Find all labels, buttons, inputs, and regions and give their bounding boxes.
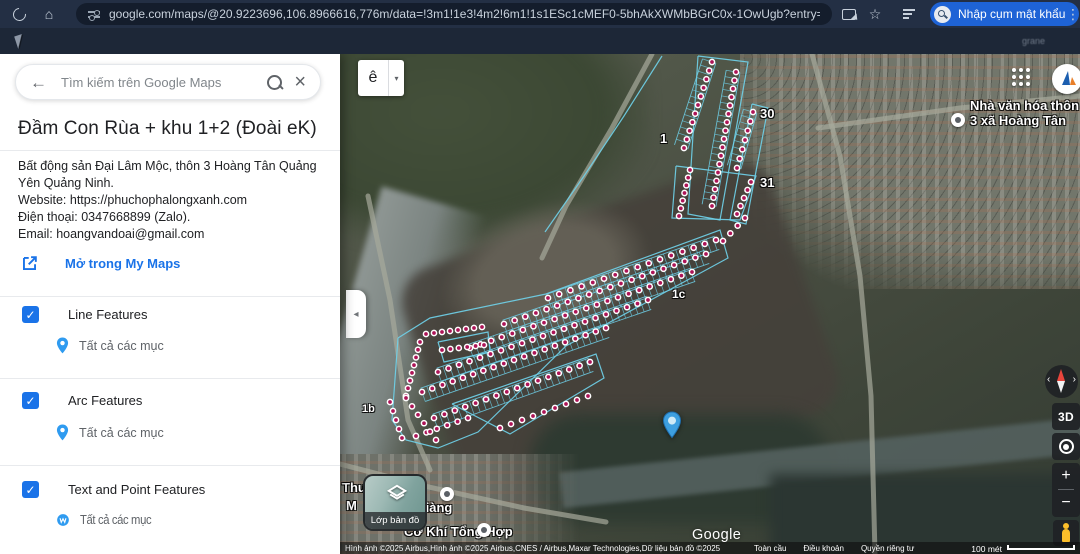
parcel-tick (537, 348, 542, 361)
lot-marker[interactable] (603, 312, 608, 317)
parcel-line (503, 250, 705, 320)
lot-marker[interactable] (447, 328, 452, 333)
search-icon[interactable] (267, 75, 282, 90)
link-privacy[interactable]: Quyền riêng tư (861, 544, 914, 553)
layer-items-text-point-features[interactable]: Tất cả các mục (56, 513, 159, 527)
lot-marker[interactable] (545, 295, 550, 300)
lot-marker[interactable] (745, 187, 750, 192)
layer-items-label: Tất cả các mục (80, 513, 151, 527)
lot-marker[interactable] (576, 296, 581, 301)
lot-marker[interactable] (489, 338, 494, 343)
lot-marker[interactable] (646, 261, 651, 266)
lot-marker[interactable] (726, 111, 731, 116)
lot-marker[interactable] (680, 249, 685, 254)
lot-marker[interactable] (737, 156, 742, 161)
lot-marker[interactable] (572, 323, 577, 328)
lot-marker[interactable] (573, 309, 578, 314)
layer-row-line-features: Line Features (22, 306, 148, 323)
lot-marker[interactable] (567, 367, 572, 372)
lot-marker[interactable] (551, 330, 556, 335)
browser-menu-button[interactable]: ⋮ (1062, 3, 1080, 25)
lot-marker[interactable] (546, 374, 551, 379)
lot-marker[interactable] (413, 355, 418, 360)
open-in-new-icon (20, 254, 39, 273)
home-button[interactable]: ⌂ (38, 3, 60, 25)
lot-marker[interactable] (465, 415, 470, 420)
lot-marker[interactable] (676, 213, 681, 218)
lot-marker[interactable] (684, 137, 689, 142)
rotate-left-icon: ‹ (1047, 374, 1050, 385)
lot-marker[interactable] (601, 276, 606, 281)
lot-marker[interactable] (448, 346, 453, 351)
lot-marker[interactable] (450, 379, 455, 384)
lot-marker[interactable] (541, 409, 546, 414)
lot-marker[interactable] (431, 330, 436, 335)
lot-marker[interactable] (603, 325, 608, 330)
lot-marker[interactable] (682, 190, 687, 195)
lot-marker[interactable] (657, 257, 662, 262)
lot-marker[interactable] (455, 327, 460, 332)
lot-marker[interactable] (390, 408, 395, 413)
lot-marker[interactable] (393, 417, 398, 422)
lot-marker[interactable] (647, 284, 652, 289)
zoom-in-button[interactable]: + (1052, 463, 1080, 489)
lot-marker[interactable] (703, 251, 708, 256)
lot-marker[interactable] (594, 302, 599, 307)
lot-marker[interactable] (637, 287, 642, 292)
lot-marker[interactable] (439, 347, 444, 352)
lot-marker[interactable] (721, 136, 726, 141)
lot-marker[interactable] (481, 342, 486, 347)
layer-items-label: Tất cả các mục (79, 426, 164, 440)
lot-marker[interactable] (532, 350, 537, 355)
lot-marker[interactable] (702, 241, 707, 246)
lot-marker[interactable] (531, 324, 536, 329)
lot-marker[interactable] (439, 329, 444, 334)
lot-marker[interactable] (727, 103, 732, 108)
lot-marker[interactable] (711, 195, 716, 200)
lot-marker[interactable] (411, 363, 416, 368)
lot-marker[interactable] (584, 306, 589, 311)
lot-marker[interactable] (687, 128, 692, 133)
lot-marker[interactable] (734, 211, 739, 216)
lot-marker[interactable] (544, 307, 549, 312)
lot-marker[interactable] (593, 315, 598, 320)
lot-marker[interactable] (409, 404, 414, 409)
lot-marker[interactable] (698, 94, 703, 99)
lot-marker[interactable] (504, 389, 509, 394)
star-icon: ☆ (869, 6, 882, 23)
lot-marker[interactable] (456, 345, 461, 350)
lot-marker[interactable] (440, 382, 445, 387)
lot-marker[interactable] (508, 421, 513, 426)
lot-marker[interactable] (590, 280, 595, 285)
map-canvas[interactable]: 130311c1bNhà văn hóa thôn 3 xã Hoàng Tân… (340, 54, 1080, 554)
lot-marker[interactable] (680, 198, 685, 203)
zoom-control: + − (1052, 463, 1080, 517)
lot-marker[interactable] (435, 369, 440, 374)
password-prompt-label: Nhập cụm mật khẩu (958, 7, 1065, 21)
lot-marker[interactable] (693, 111, 698, 116)
layer-items-line-features[interactable]: Tất cả các mục (56, 337, 164, 354)
key-icon (934, 6, 951, 23)
lot-marker[interactable] (618, 281, 623, 286)
description-line: Bất động sản Đại Lâm Mộc, thôn 3 Hoàng T… (18, 158, 318, 192)
parcel-tick (561, 368, 566, 381)
back-button[interactable]: ← (30, 74, 47, 91)
lot-marker[interactable] (483, 397, 488, 402)
lot-marker[interactable] (463, 326, 468, 331)
lot-marker[interactable] (415, 347, 420, 352)
lot-marker[interactable] (713, 237, 718, 242)
lot-marker[interactable] (465, 344, 470, 349)
lot-marker[interactable] (530, 337, 535, 342)
reload-icon (10, 5, 28, 23)
lot-marker[interactable] (511, 357, 516, 362)
lot-marker[interactable] (501, 321, 506, 326)
google-logo: Google (692, 527, 741, 543)
lot-marker[interactable] (460, 375, 465, 380)
ime-language-char: ê (358, 60, 389, 96)
lot-marker[interactable] (724, 120, 729, 125)
lot-marker[interactable] (430, 386, 435, 391)
search-input[interactable] (59, 74, 255, 91)
lot-marker[interactable] (748, 119, 753, 124)
lot-marker[interactable] (409, 370, 414, 375)
ime-indicator[interactable]: ê ▾ (358, 60, 404, 96)
lot-marker[interactable] (552, 343, 557, 348)
lot-marker[interactable] (573, 336, 578, 341)
layers-icon (386, 484, 408, 504)
divider (0, 150, 340, 151)
close-icon[interactable]: × (294, 72, 306, 92)
pegman-icon (1062, 529, 1070, 542)
lot-marker[interactable] (742, 137, 747, 142)
poi-marker[interactable] (477, 523, 491, 537)
lot-marker[interactable] (626, 291, 631, 296)
lot-marker[interactable] (557, 292, 562, 297)
lot-marker[interactable] (561, 326, 566, 331)
lot-marker[interactable] (614, 308, 619, 313)
lot-marker[interactable] (488, 351, 493, 356)
description-line: Điện thoại: 0347668899 (Zalo). (18, 209, 318, 226)
lot-marker[interactable] (686, 175, 691, 180)
map-title: Đầm Con Rùa + khu 1+2 (Đoài eK) (18, 118, 317, 140)
layer-checkbox[interactable] (22, 306, 39, 323)
dropped-pin[interactable] (662, 411, 682, 444)
lot-marker[interactable] (540, 333, 545, 338)
layer-label: Text and Point Features (68, 482, 205, 497)
lot-marker[interactable] (442, 412, 447, 417)
lot-marker[interactable] (433, 437, 438, 442)
lot-marker[interactable] (742, 215, 747, 220)
road (818, 96, 1080, 128)
lot-marker[interactable] (555, 303, 560, 308)
scale-label: 100 mét (971, 544, 1002, 554)
lot-marker[interactable] (629, 277, 634, 282)
lot-marker[interactable] (481, 368, 486, 373)
avatar-logo-icon (1054, 66, 1080, 92)
lot-marker[interactable] (541, 320, 546, 325)
send-to-device-icon (842, 9, 856, 20)
place-pin-icon (56, 424, 69, 441)
lot-marker[interactable] (640, 274, 645, 279)
lot-marker[interactable] (473, 343, 478, 348)
lot-marker[interactable] (624, 268, 629, 273)
lot-marker[interactable] (563, 313, 568, 318)
lot-marker[interactable] (522, 354, 527, 359)
my-location-button[interactable] (1052, 433, 1080, 460)
lot-marker[interactable] (729, 95, 734, 100)
lot-marker[interactable] (535, 378, 540, 383)
lot-marker[interactable] (491, 365, 496, 370)
pin-icon (662, 411, 682, 439)
kebab-menu-icon: ⋮ (1066, 6, 1080, 23)
lot-marker[interactable] (613, 272, 618, 277)
lot-marker[interactable] (658, 280, 663, 285)
lot-marker[interactable] (499, 335, 504, 340)
lot-marker[interactable] (679, 273, 684, 278)
lot-marker[interactable] (717, 162, 722, 167)
site-settings-icon[interactable] (88, 9, 100, 19)
lot-marker[interactable] (455, 419, 460, 424)
description-line: Email: hoangvandoai@gmail.com (18, 226, 318, 243)
lot-marker[interactable] (714, 178, 719, 183)
bookmarks-bar-text: grane (1022, 36, 1045, 46)
description-line: Website: https://phuchophalongxanh.com (18, 192, 318, 209)
compass-control[interactable]: ‹ › (1045, 365, 1078, 398)
lot-marker[interactable] (542, 347, 547, 352)
layer-items-arc-features[interactable]: Tất cả các mục (56, 424, 164, 441)
lot-marker[interactable] (501, 361, 506, 366)
lot-marker[interactable] (498, 348, 503, 353)
layer-checkbox[interactable] (22, 392, 39, 409)
lot-marker[interactable] (563, 401, 568, 406)
lot-marker[interactable] (512, 318, 517, 323)
lot-marker[interactable] (520, 327, 525, 332)
lot-marker[interactable] (709, 59, 714, 64)
lot-marker[interactable] (597, 288, 602, 293)
place-pin-icon (56, 337, 69, 354)
lot-marker[interactable] (734, 165, 739, 170)
url-text: google.com/maps/@20.9223696,106.8966616,… (109, 7, 820, 21)
lot-marker[interactable] (682, 259, 687, 264)
lot-marker[interactable] (661, 266, 666, 271)
lot-marker[interactable] (650, 270, 655, 275)
lot-marker[interactable] (579, 284, 584, 289)
lot-marker[interactable] (427, 429, 432, 434)
chevron-down-icon[interactable]: ▾ (389, 60, 404, 96)
compass-north-needle (1057, 369, 1065, 381)
lot-marker[interactable] (565, 299, 570, 304)
lot-marker[interactable] (669, 253, 674, 258)
link-global[interactable]: Toàn cầu (754, 544, 786, 553)
lot-marker[interactable] (387, 399, 392, 404)
lot-marker[interactable] (624, 305, 629, 310)
lot-marker[interactable] (473, 400, 478, 405)
lot-marker[interactable] (434, 426, 439, 431)
lot-marker[interactable] (608, 285, 613, 290)
lot-marker[interactable] (583, 333, 588, 338)
reload-button[interactable] (8, 3, 30, 25)
layer-label: Line Features (68, 307, 148, 322)
lot-marker[interactable] (403, 395, 408, 400)
lot-marker[interactable] (732, 78, 737, 83)
lot-marker[interactable] (635, 301, 640, 306)
lot-marker[interactable] (704, 77, 709, 82)
lot-marker[interactable] (399, 435, 404, 440)
lot-marker[interactable] (712, 187, 717, 192)
lot-marker[interactable] (672, 262, 677, 267)
lot-marker[interactable] (523, 314, 528, 319)
lot-marker[interactable] (510, 331, 515, 336)
lot-marker[interactable] (684, 183, 689, 188)
account-avatar[interactable] (1052, 64, 1080, 94)
rotate-right-icon: › (1073, 374, 1076, 385)
lot-marker[interactable] (456, 362, 461, 367)
lot-marker[interactable] (556, 371, 561, 376)
bookmark-star-button[interactable]: ☆ (864, 3, 886, 25)
lot-marker[interactable] (479, 324, 484, 329)
layer-row-text-point-features: Text and Point Features (22, 481, 205, 498)
lot-marker[interactable] (471, 372, 476, 377)
lot-marker[interactable] (681, 145, 686, 150)
lot-marker[interactable] (730, 86, 735, 91)
lot-marker[interactable] (552, 405, 557, 410)
open-in-mymaps-label: Mở trong My Maps (65, 256, 180, 271)
lot-marker[interactable] (431, 415, 436, 420)
zoom-out-button[interactable]: − (1052, 490, 1080, 516)
collections-button[interactable] (898, 3, 920, 25)
lot-marker[interactable] (515, 386, 520, 391)
mouse-cursor (14, 34, 26, 49)
lot-marker[interactable] (668, 277, 673, 282)
password-prompt-button[interactable]: Nhập cụm mật khẩu (930, 2, 1079, 26)
lot-marker[interactable] (463, 404, 468, 409)
lot-marker[interactable] (585, 393, 590, 398)
lot-marker[interactable] (720, 145, 725, 150)
lot-marker[interactable] (415, 412, 420, 417)
google-apps-button[interactable] (1012, 68, 1033, 89)
lot-marker[interactable] (707, 68, 712, 73)
lot-marker[interactable] (419, 389, 424, 394)
lot-marker[interactable] (750, 109, 755, 114)
lot-marker[interactable] (691, 245, 696, 250)
lot-marker[interactable] (467, 359, 472, 364)
lot-marker[interactable] (605, 298, 610, 303)
lot-marker[interactable] (445, 423, 450, 428)
link-terms[interactable]: Điều khoản (803, 544, 843, 553)
search-card: ← × (15, 64, 321, 100)
lot-marker[interactable] (738, 203, 743, 208)
lot-marker[interactable] (552, 316, 557, 321)
lot-marker[interactable] (689, 269, 694, 274)
lot-marker[interactable] (735, 223, 740, 228)
lot-marker[interactable] (715, 170, 720, 175)
lot-marker[interactable] (519, 417, 524, 422)
lot-marker[interactable] (494, 393, 499, 398)
lot-marker[interactable] (690, 120, 695, 125)
lot-marker[interactable] (563, 340, 568, 345)
lot-marker[interactable] (709, 203, 714, 208)
browser-toolbar: ⌂ google.com/maps/@20.9223696,106.896661… (0, 0, 1080, 28)
lot-marker[interactable] (509, 344, 514, 349)
lot-marker[interactable] (471, 325, 476, 330)
poi-marker[interactable] (440, 487, 454, 501)
address-bar[interactable]: google.com/maps/@20.9223696,106.8966616,… (76, 3, 832, 25)
collapse-panel-button[interactable]: ◂ (346, 290, 366, 338)
map-overlay (340, 54, 1080, 554)
lot-marker[interactable] (407, 378, 412, 383)
lot-marker[interactable] (733, 69, 738, 74)
collections-icon (903, 9, 915, 19)
lot-marker[interactable] (423, 331, 428, 336)
lot-marker[interactable] (413, 433, 418, 438)
parcel-tick (719, 109, 733, 111)
parcel-tick (445, 380, 450, 393)
lot-marker[interactable] (748, 179, 753, 184)
lot-marker[interactable] (720, 238, 725, 243)
lot-marker[interactable] (678, 206, 683, 211)
lot-marker[interactable] (417, 339, 422, 344)
lot-marker[interactable] (587, 359, 592, 364)
lot-marker[interactable] (741, 195, 746, 200)
parcel-tick (507, 358, 512, 371)
lot-marker[interactable] (577, 363, 582, 368)
lot-marker[interactable] (718, 153, 723, 158)
lot-marker[interactable] (593, 329, 598, 334)
browser-topbar: ⌂ google.com/maps/@20.9223696,106.896661… (0, 0, 1080, 54)
toggle-3d-button[interactable]: 3D (1052, 403, 1080, 430)
lot-marker[interactable] (421, 421, 426, 426)
lot-marker[interactable] (728, 231, 733, 236)
lot-marker[interactable] (693, 255, 698, 260)
map-layers-button[interactable]: Lớp bản đồ (363, 474, 427, 531)
lot-marker[interactable] (396, 426, 401, 431)
lot-marker[interactable] (452, 408, 457, 413)
lot-marker[interactable] (723, 128, 728, 133)
layer-label: Arc Features (68, 393, 142, 408)
lot-marker[interactable] (405, 386, 410, 391)
lot-marker[interactable] (695, 102, 700, 107)
lot-marker[interactable] (586, 292, 591, 297)
lot-marker[interactable] (525, 382, 530, 387)
lot-marker[interactable] (568, 288, 573, 293)
lot-marker[interactable] (519, 341, 524, 346)
lot-marker[interactable] (635, 264, 640, 269)
lot-marker[interactable] (582, 319, 587, 324)
poi-marker[interactable] (951, 113, 965, 127)
send-to-device-button[interactable] (838, 3, 860, 25)
layer-checkbox[interactable] (22, 481, 39, 498)
map-layers-label: Lớp bản đồ (365, 512, 425, 529)
lot-marker[interactable] (615, 295, 620, 300)
lot-marker[interactable] (477, 355, 482, 360)
lot-marker[interactable] (645, 297, 650, 302)
lot-marker[interactable] (497, 425, 502, 430)
divider (0, 465, 340, 466)
lot-marker[interactable] (701, 85, 706, 90)
lot-marker[interactable] (533, 310, 538, 315)
lot-marker[interactable] (446, 366, 451, 371)
layer-row-arc-features: Arc Features (22, 392, 142, 409)
lot-marker[interactable] (530, 413, 535, 418)
lot-marker[interactable] (745, 128, 750, 133)
open-in-mymaps-link[interactable]: Mở trong My Maps (20, 254, 180, 273)
lot-marker[interactable] (574, 397, 579, 402)
lot-marker[interactable] (687, 167, 692, 172)
lot-marker[interactable] (740, 147, 745, 152)
